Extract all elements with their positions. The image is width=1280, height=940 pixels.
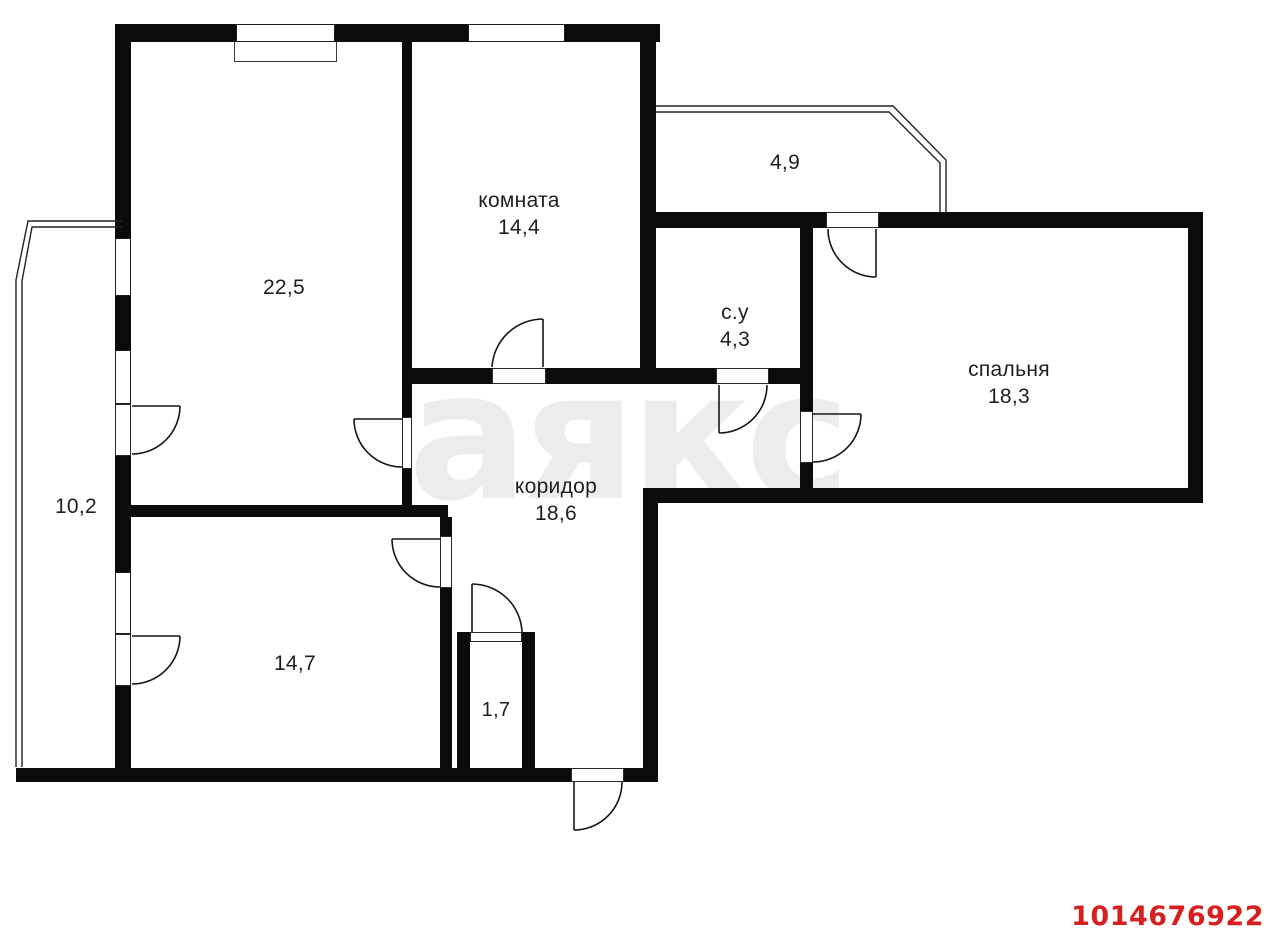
room-name: с.у: [695, 299, 775, 326]
room-label-su: с.у 4,3: [695, 299, 775, 353]
room-area: 22,5: [234, 274, 334, 301]
door-arc: [472, 584, 522, 632]
room-area: 4,3: [695, 326, 775, 353]
room-area: 4,9: [735, 149, 835, 176]
door-arc: [392, 539, 440, 587]
door-arc: [574, 782, 622, 830]
room-label-closet: 1,7: [466, 697, 526, 724]
room-area: 18,6: [486, 500, 626, 527]
listing-id: 1014676922: [1071, 901, 1264, 932]
room-area: 18,3: [929, 383, 1089, 410]
room-area: 14,4: [449, 214, 589, 241]
door-arc: [132, 636, 180, 684]
room-area: 1,7: [466, 697, 526, 724]
room-name: коридор: [486, 473, 626, 500]
room-label-balcony-left: 10,2: [26, 493, 126, 520]
room-area: 10,2: [26, 493, 126, 520]
room-label-22-5: 22,5: [234, 274, 334, 301]
room-label-spalnya: спальня 18,3: [929, 356, 1089, 410]
room-name: комната: [449, 187, 589, 214]
door-arc: [828, 229, 876, 277]
room-label-komnata: комната 14,4: [449, 187, 589, 241]
door-arc: [354, 419, 402, 467]
door-arc: [813, 414, 861, 462]
room-name: спальня: [929, 356, 1089, 383]
door-arc: [492, 319, 543, 367]
room-area: 14,7: [245, 650, 345, 677]
floor-plan: аякс: [0, 0, 1280, 940]
door-and-railing-layer: [0, 0, 1280, 940]
room-label-14-7: 14,7: [245, 650, 345, 677]
room-label-balcony-top: 4,9: [735, 149, 835, 176]
door-arc: [719, 385, 767, 433]
door-arc: [132, 406, 180, 454]
room-label-koridor: коридор 18,6: [486, 473, 626, 527]
